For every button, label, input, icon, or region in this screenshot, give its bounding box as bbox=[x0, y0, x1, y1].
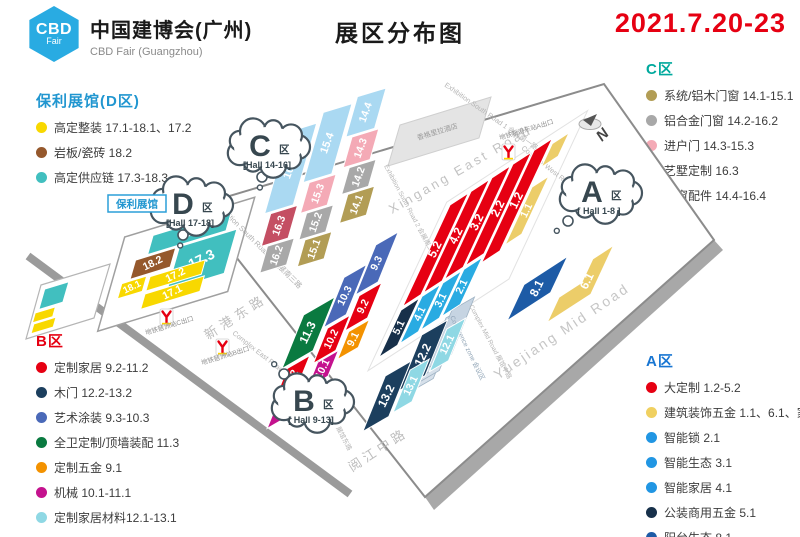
legend-dot-icon bbox=[36, 437, 47, 448]
legend-zone-c-title: C区 bbox=[646, 58, 793, 79]
legend-b-item: 机械 10.1-11.1 bbox=[36, 484, 179, 501]
hall-6.1 bbox=[547, 245, 613, 322]
logo-text-fair: Fair bbox=[46, 37, 62, 46]
legend-a-item-label: 阳台生态 8.1 bbox=[664, 529, 732, 537]
poly-hall-tag bbox=[108, 195, 166, 212]
road-label-exh1: Exhibition South Road 1 会展南一路 bbox=[443, 80, 540, 152]
hall-label-15.3: 15.3 bbox=[309, 182, 327, 205]
hall-13.2 bbox=[363, 361, 411, 432]
hall-14.2 bbox=[342, 159, 377, 194]
hall-1.1b bbox=[541, 133, 569, 168]
road-label-complex-mid: Complex Mid Road 展馆中路 bbox=[467, 303, 514, 381]
hall-1.1 bbox=[505, 176, 549, 245]
legend-dot-icon bbox=[36, 512, 47, 523]
hall-label-11.1: 11.1 bbox=[273, 398, 293, 421]
hall-5.2 bbox=[403, 193, 469, 307]
metro-exit-icon: 地铁新港东站A出口 bbox=[498, 117, 555, 160]
metro-exit-label: 地铁琶洲站B出口 bbox=[200, 344, 250, 367]
legend-dot-icon bbox=[646, 457, 657, 468]
legend-a-item-label: 建筑装饰五金 1.1、6.1、家居精品廊 bbox=[664, 404, 800, 421]
hall-11.3 bbox=[282, 297, 335, 369]
zone-cloud-letter: C bbox=[249, 130, 271, 163]
zone-cloud-range: [ Hall 9-13] bbox=[288, 415, 334, 425]
hall-label-18.2: 18.2 bbox=[141, 253, 165, 273]
hall-label-14.3: 14.3 bbox=[352, 136, 370, 159]
hall-9.2 bbox=[345, 283, 382, 331]
conference-zone-building bbox=[411, 321, 457, 392]
legend-d-item-label: 岩板/瓷砖 18.2 bbox=[54, 144, 132, 161]
hall-label-16.3: 16.3 bbox=[270, 214, 288, 237]
hall-4.1 bbox=[400, 285, 440, 344]
hall-label-16.4: 16.4 bbox=[281, 156, 300, 181]
hall-14.3 bbox=[343, 129, 379, 168]
hotel-building bbox=[388, 97, 491, 166]
legend-dot-icon bbox=[36, 412, 47, 423]
hall-label-5.2: 5.2 bbox=[425, 239, 445, 260]
legend-c-item: 进户门 14.3-15.3 bbox=[646, 137, 793, 154]
hall-14.1 bbox=[340, 186, 375, 223]
page-title: 展区分布图 bbox=[335, 14, 465, 48]
legend-a-item-label: 大定制 1.2-5.2 bbox=[664, 379, 741, 396]
hall-10.1 bbox=[307, 350, 338, 388]
zone-cloud-b: B区[ Hall 9-13] bbox=[272, 362, 354, 433]
hall-14.4 bbox=[346, 88, 386, 137]
legend-b-item: 定制五金 9.1 bbox=[36, 459, 179, 476]
legend-zone-c-items: 系统/铝木门窗 14.1-15.1铝合金门窗 14.2-16.2进户门 14.3… bbox=[646, 87, 793, 204]
hall-9.3 bbox=[356, 232, 399, 295]
legend-b-item: 木门 12.2-13.2 bbox=[36, 384, 179, 401]
zone-cloud-zonechar: 区 bbox=[323, 399, 334, 411]
legend-dot-icon bbox=[646, 165, 657, 176]
legend-zone-d-items: 高定整装 17.1-18.1、17.2岩板/瓷砖 18.2高定供应链 17.3-… bbox=[36, 119, 191, 186]
legend-c-item-label: 铝合金门窗 14.2-16.2 bbox=[664, 112, 778, 129]
hall-label-14.2: 14.2 bbox=[350, 165, 368, 188]
hall-label-17.1: 17.1 bbox=[161, 283, 185, 303]
poly-annex-outline bbox=[26, 264, 110, 339]
road-label-complex-west: Complex West Road bbox=[520, 145, 575, 190]
legend-c-item-label: 进户门 14.3-15.3 bbox=[664, 137, 754, 154]
event-date: 2021.7.20-23 bbox=[615, 8, 786, 39]
hall-label-14.4: 14.4 bbox=[357, 101, 375, 124]
legend-zone-b-items: 定制家居 9.2-11.2木门 12.2-13.2艺术涂装 9.3-10.3全卫… bbox=[36, 359, 179, 526]
hall-3.2 bbox=[445, 166, 511, 279]
legend-dot-icon bbox=[36, 172, 47, 183]
logo-text-cbd: CBD bbox=[36, 22, 72, 37]
hall-3.1 bbox=[421, 271, 462, 330]
hall-16.2 bbox=[260, 238, 295, 273]
zone-cloud-zonechar: 区 bbox=[279, 144, 290, 156]
road-label-exh2: Exhibition South Road 2 会展南二路 bbox=[382, 163, 439, 260]
page-canvas: CBD Fair 中国建博会(广州) CBD Fair (Guangzhou) … bbox=[0, 0, 800, 537]
legend-b-item-label: 机械 10.1-11.1 bbox=[54, 484, 131, 501]
hall-label-11.3: 11.3 bbox=[296, 319, 319, 346]
zone-cloud-zonechar: 区 bbox=[611, 190, 622, 202]
legend-b-item: 定制家居 9.2-11.2 bbox=[36, 359, 179, 376]
legend-b-item-label: 木门 12.2-13.2 bbox=[54, 384, 132, 401]
legend-dot-icon bbox=[646, 432, 657, 443]
hall-label-14.1: 14.1 bbox=[348, 193, 366, 216]
hall-label-2.1: 2.1 bbox=[453, 277, 470, 296]
hall-1.2 bbox=[482, 139, 553, 263]
road-label-complex-east2: 展馆东路 bbox=[334, 425, 354, 453]
road-label-yuejiang-en: Yuejiang Mid Road bbox=[491, 280, 633, 383]
legend-c-item: 门窗配件 14.4-16.4 bbox=[646, 187, 793, 204]
hall-17.2 bbox=[146, 260, 206, 291]
legend-dot-icon bbox=[36, 387, 47, 398]
legend-dot-icon bbox=[646, 407, 657, 418]
legend-zone-c: C区 系统/铝木门窗 14.1-15.1铝合金门窗 14.2-16.2进户门 1… bbox=[646, 58, 793, 212]
legend-dot-icon bbox=[646, 507, 657, 518]
hall-16.4 bbox=[265, 123, 317, 214]
hall-label-15.1: 15.1 bbox=[305, 237, 323, 260]
road-label-yuejiang-cn: 阅江中路 bbox=[345, 425, 410, 475]
legend-d-item-label: 高定供应链 17.3-18.3 bbox=[54, 169, 168, 186]
hall-label-18.3: 18.3 bbox=[178, 223, 202, 243]
hotel-label: 香格里拉酒店 bbox=[416, 121, 459, 142]
hall-label-6.1: 6.1 bbox=[577, 270, 597, 291]
hall-label-11.2: 11.2 bbox=[282, 368, 302, 391]
hall-label-8.1: 8.1 bbox=[527, 277, 547, 298]
hall-label-13.2: 13.2 bbox=[375, 382, 398, 409]
metro-exit-icon: 地铁琶洲站B出口 bbox=[200, 339, 250, 367]
hall-2.1 bbox=[442, 257, 482, 316]
compass-north-icon: N bbox=[579, 114, 613, 145]
hall-label-1.2: 1.2 bbox=[506, 190, 526, 211]
hall-11.2 bbox=[273, 355, 310, 403]
hall-5.1 bbox=[379, 298, 419, 357]
hall-15.3 bbox=[301, 174, 337, 213]
hall-11.1 bbox=[267, 391, 298, 429]
legend-dot-icon bbox=[36, 487, 47, 498]
hall-15.4 bbox=[303, 104, 352, 183]
hall-10.3 bbox=[324, 264, 367, 327]
metro-exit-label: 地铁新港东站A出口 bbox=[498, 117, 555, 142]
legend-c-item-label: 门窗配件 14.4-16.4 bbox=[664, 187, 766, 204]
hall-label-9.1: 9.1 bbox=[345, 330, 362, 349]
hall-label-16.2: 16.2 bbox=[268, 244, 286, 267]
legend-b-item-label: 定制家居材料12.1-13.1 bbox=[54, 509, 177, 526]
zone-cloud-a: A区[ Hall 1-8 ] bbox=[554, 164, 642, 233]
complex-outline bbox=[196, 84, 714, 497]
zone-cloud-range: [ Hall 1-8 ] bbox=[577, 206, 620, 216]
legend-dot-icon bbox=[646, 140, 657, 151]
legend-a-item: 公装商用五金 5.1 bbox=[646, 504, 800, 521]
legend-a-item: 智能锁 2.1 bbox=[646, 429, 800, 446]
legend-zone-a: A区 大定制 1.2-5.2建筑装饰五金 1.1、6.1、家居精品廊智能锁 2.… bbox=[646, 350, 800, 537]
hall-16.3 bbox=[261, 205, 297, 246]
legend-zone-a-items: 大定制 1.2-5.2建筑装饰五金 1.1、6.1、家居精品廊智能锁 2.1智能… bbox=[646, 379, 800, 537]
poly-hall-outline bbox=[98, 197, 255, 331]
zone-cloud-zonechar: 区 bbox=[202, 202, 213, 214]
hall-17.3 bbox=[167, 229, 237, 291]
hall-label-15.2: 15.2 bbox=[307, 211, 325, 234]
legend-d-item: 高定整装 17.1-18.1、17.2 bbox=[36, 119, 191, 136]
zone-cloud-c: C区[Hall 14-16] bbox=[228, 118, 310, 190]
legend-a-item: 智能生态 3.1 bbox=[646, 454, 800, 471]
legend-dot-icon bbox=[646, 382, 657, 393]
svg-text:N: N bbox=[593, 124, 614, 145]
conference-zone-label: Conference zone 会议区 bbox=[448, 314, 487, 382]
legend-a-item: 阳台生态 8.1 bbox=[646, 529, 800, 537]
legend-b-item-label: 艺术涂装 9.3-10.3 bbox=[54, 409, 149, 426]
hall-label-17.2: 17.2 bbox=[164, 265, 188, 285]
legend-b-item-label: 全卫定制/顶墙装配 11.3 bbox=[54, 434, 179, 451]
legend-dot-icon bbox=[646, 90, 657, 101]
hall-9.1 bbox=[338, 320, 370, 360]
road-label-xingang-en: Xingang East Road bbox=[386, 122, 535, 217]
hall-label-10.3: 10.3 bbox=[335, 284, 355, 308]
brand-name-en: CBD Fair (Guangzhou) bbox=[90, 46, 252, 58]
hall-label-15.4: 15.4 bbox=[318, 130, 337, 155]
conference-zone-building bbox=[429, 297, 475, 368]
zone-cloud-letter: B bbox=[293, 385, 315, 418]
hall-12.2 bbox=[399, 320, 447, 391]
brand-block: 中国建博会(广州) CBD Fair (Guangzhou) bbox=[90, 14, 252, 58]
hall-label-5.1: 5.1 bbox=[390, 318, 407, 337]
legend-dot-icon bbox=[36, 122, 47, 133]
hall-label-4.1: 4.1 bbox=[411, 305, 428, 324]
hall-18.2 bbox=[130, 248, 176, 279]
legend-c-item-label: 艺墅定制 16.3 bbox=[664, 162, 739, 179]
hall-18.3 bbox=[148, 211, 232, 254]
zone-cloud-range: [Hall 17-18] bbox=[166, 218, 214, 228]
hall-label-2.2: 2.2 bbox=[488, 198, 508, 219]
hall-label-3.1: 3.1 bbox=[432, 291, 449, 310]
legend-zone-b: B区 定制家居 9.2-11.2木门 12.2-13.2艺术涂装 9.3-10.… bbox=[36, 330, 179, 534]
hall-label-3.2: 3.2 bbox=[467, 211, 487, 232]
hall-12.1 bbox=[429, 318, 465, 372]
hall-13.1 bbox=[393, 359, 429, 413]
legend-b-item-label: 定制家居 9.2-11.2 bbox=[54, 359, 148, 376]
legend-b-item-label: 定制五金 9.1 bbox=[54, 459, 122, 476]
hall-label-12.1: 12.1 bbox=[438, 333, 458, 357]
legend-a-item-label: 智能生态 3.1 bbox=[664, 454, 732, 471]
zone-cloud-letter: A bbox=[581, 176, 603, 209]
legend-zone-d: 保利展馆(D区) 高定整装 17.1-18.1、17.2岩板/瓷砖 18.2高定… bbox=[36, 90, 191, 194]
legend-c-item: 铝合金门窗 14.2-16.2 bbox=[646, 112, 793, 129]
legend-b-item: 定制家居材料12.1-13.1 bbox=[36, 509, 179, 526]
legend-d-item: 高定供应链 17.3-18.3 bbox=[36, 169, 191, 186]
road-label-exh3: Exhibition South Road 3 会展南三路 bbox=[213, 198, 305, 290]
legend-dot-icon bbox=[646, 482, 657, 493]
cbd-fair-logo: CBD Fair bbox=[26, 6, 82, 62]
hall-label-17.3: 17.3 bbox=[186, 246, 218, 272]
legend-dot-icon bbox=[36, 362, 47, 373]
legend-a-item-label: 公装商用五金 5.1 bbox=[664, 504, 756, 521]
legend-dot-icon bbox=[36, 462, 47, 473]
hall-label-12.2: 12.2 bbox=[411, 341, 434, 368]
road-label-complex-east: Complex East Road bbox=[231, 330, 284, 374]
legend-dot-icon bbox=[36, 147, 47, 158]
hall-label-10.1: 10.1 bbox=[313, 357, 333, 381]
hall-2.2 bbox=[466, 152, 532, 266]
legend-a-item: 智能家居 4.1 bbox=[646, 479, 800, 496]
hall-18.1 bbox=[117, 276, 146, 299]
hall-15.2 bbox=[299, 205, 334, 240]
hall-10.2 bbox=[313, 315, 350, 363]
hall-label-4.2: 4.2 bbox=[446, 225, 466, 246]
legend-c-item-label: 系统/铝木门窗 14.1-15.1 bbox=[664, 87, 793, 104]
legend-dot-icon bbox=[646, 532, 657, 537]
legend-c-item: 艺墅定制 16.3 bbox=[646, 162, 793, 179]
legend-a-item-label: 智能家居 4.1 bbox=[664, 479, 732, 496]
legend-zone-a-title: A区 bbox=[646, 350, 800, 371]
hall-15.1 bbox=[297, 232, 332, 267]
legend-a-item: 大定制 1.2-5.2 bbox=[646, 379, 800, 396]
legend-c-item: 系统/铝木门窗 14.1-15.1 bbox=[646, 87, 793, 104]
legend-d-item: 岩板/瓷砖 18.2 bbox=[36, 144, 191, 161]
legend-dot-icon bbox=[646, 115, 657, 126]
legend-d-item-label: 高定整装 17.1-18.1、17.2 bbox=[54, 119, 191, 136]
road-label-xingang-cn: 新港东路 bbox=[201, 291, 270, 343]
zone-cloud-range: [Hall 14-16] bbox=[243, 160, 291, 170]
legend-a-item: 建筑装饰五金 1.1、6.1、家居精品廊 bbox=[646, 404, 800, 421]
legend-dot-icon bbox=[646, 190, 657, 201]
legend-zone-b-title: B区 bbox=[36, 330, 179, 351]
hall-17.1 bbox=[141, 276, 205, 310]
poly-hall-tag-label: 保利展馆 bbox=[115, 198, 158, 211]
brand-name-cn: 中国建博会(广州) bbox=[90, 14, 252, 43]
hall-4.2 bbox=[424, 179, 490, 293]
hall-label-9.2: 9.2 bbox=[355, 297, 372, 316]
hall-label-13.1: 13.1 bbox=[401, 374, 421, 398]
legend-b-item: 全卫定制/顶墙装配 11.3 bbox=[36, 434, 179, 451]
legend-a-item-label: 智能锁 2.1 bbox=[664, 429, 720, 446]
hall-label-18.1: 18.1 bbox=[121, 278, 143, 296]
hall-label-1.1: 1.1 bbox=[518, 201, 535, 220]
hall-8.1 bbox=[507, 256, 567, 321]
conference-zone-building bbox=[417, 313, 463, 384]
hall-label-9.3: 9.3 bbox=[368, 254, 385, 273]
legend-b-item: 艺术涂装 9.3-10.3 bbox=[36, 409, 179, 426]
legend-zone-d-title: 保利展馆(D区) bbox=[36, 90, 191, 111]
conference-zone-building bbox=[423, 305, 469, 376]
hall-label-10.2: 10.2 bbox=[322, 327, 342, 351]
